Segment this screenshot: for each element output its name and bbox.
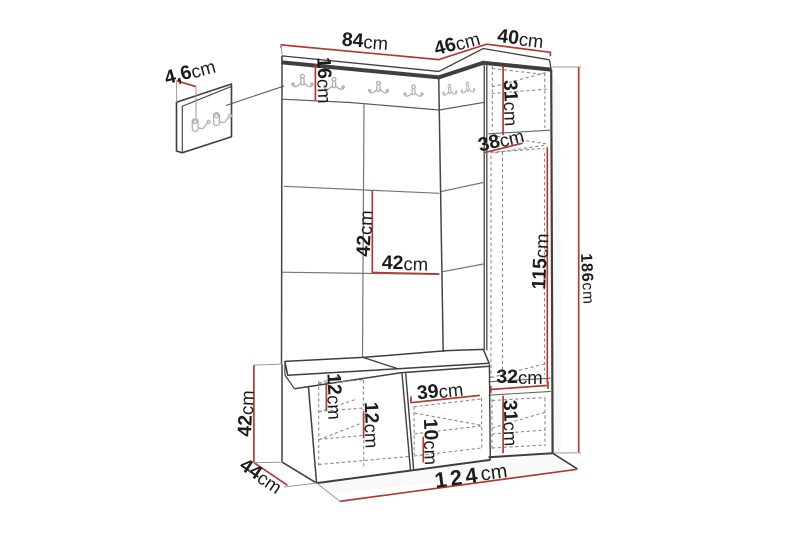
svg-text:84cm: 84cm — [341, 29, 389, 54]
svg-text:42cm: 42cm — [353, 210, 377, 257]
svg-text:16cm: 16cm — [312, 57, 336, 104]
svg-text:42cm: 42cm — [234, 390, 258, 437]
svg-text:12cm: 12cm — [360, 401, 384, 448]
svg-text:31cm: 31cm — [499, 79, 523, 126]
svg-text:10cm: 10cm — [419, 418, 443, 465]
svg-text:115cm: 115cm — [528, 233, 552, 290]
svg-text:12cm: 12cm — [322, 373, 346, 420]
svg-text:31cm: 31cm — [498, 399, 522, 446]
svg-text:32cm: 32cm — [496, 366, 542, 388]
svg-text:186cm: 186cm — [577, 253, 597, 305]
svg-text:42cm: 42cm — [382, 252, 429, 275]
